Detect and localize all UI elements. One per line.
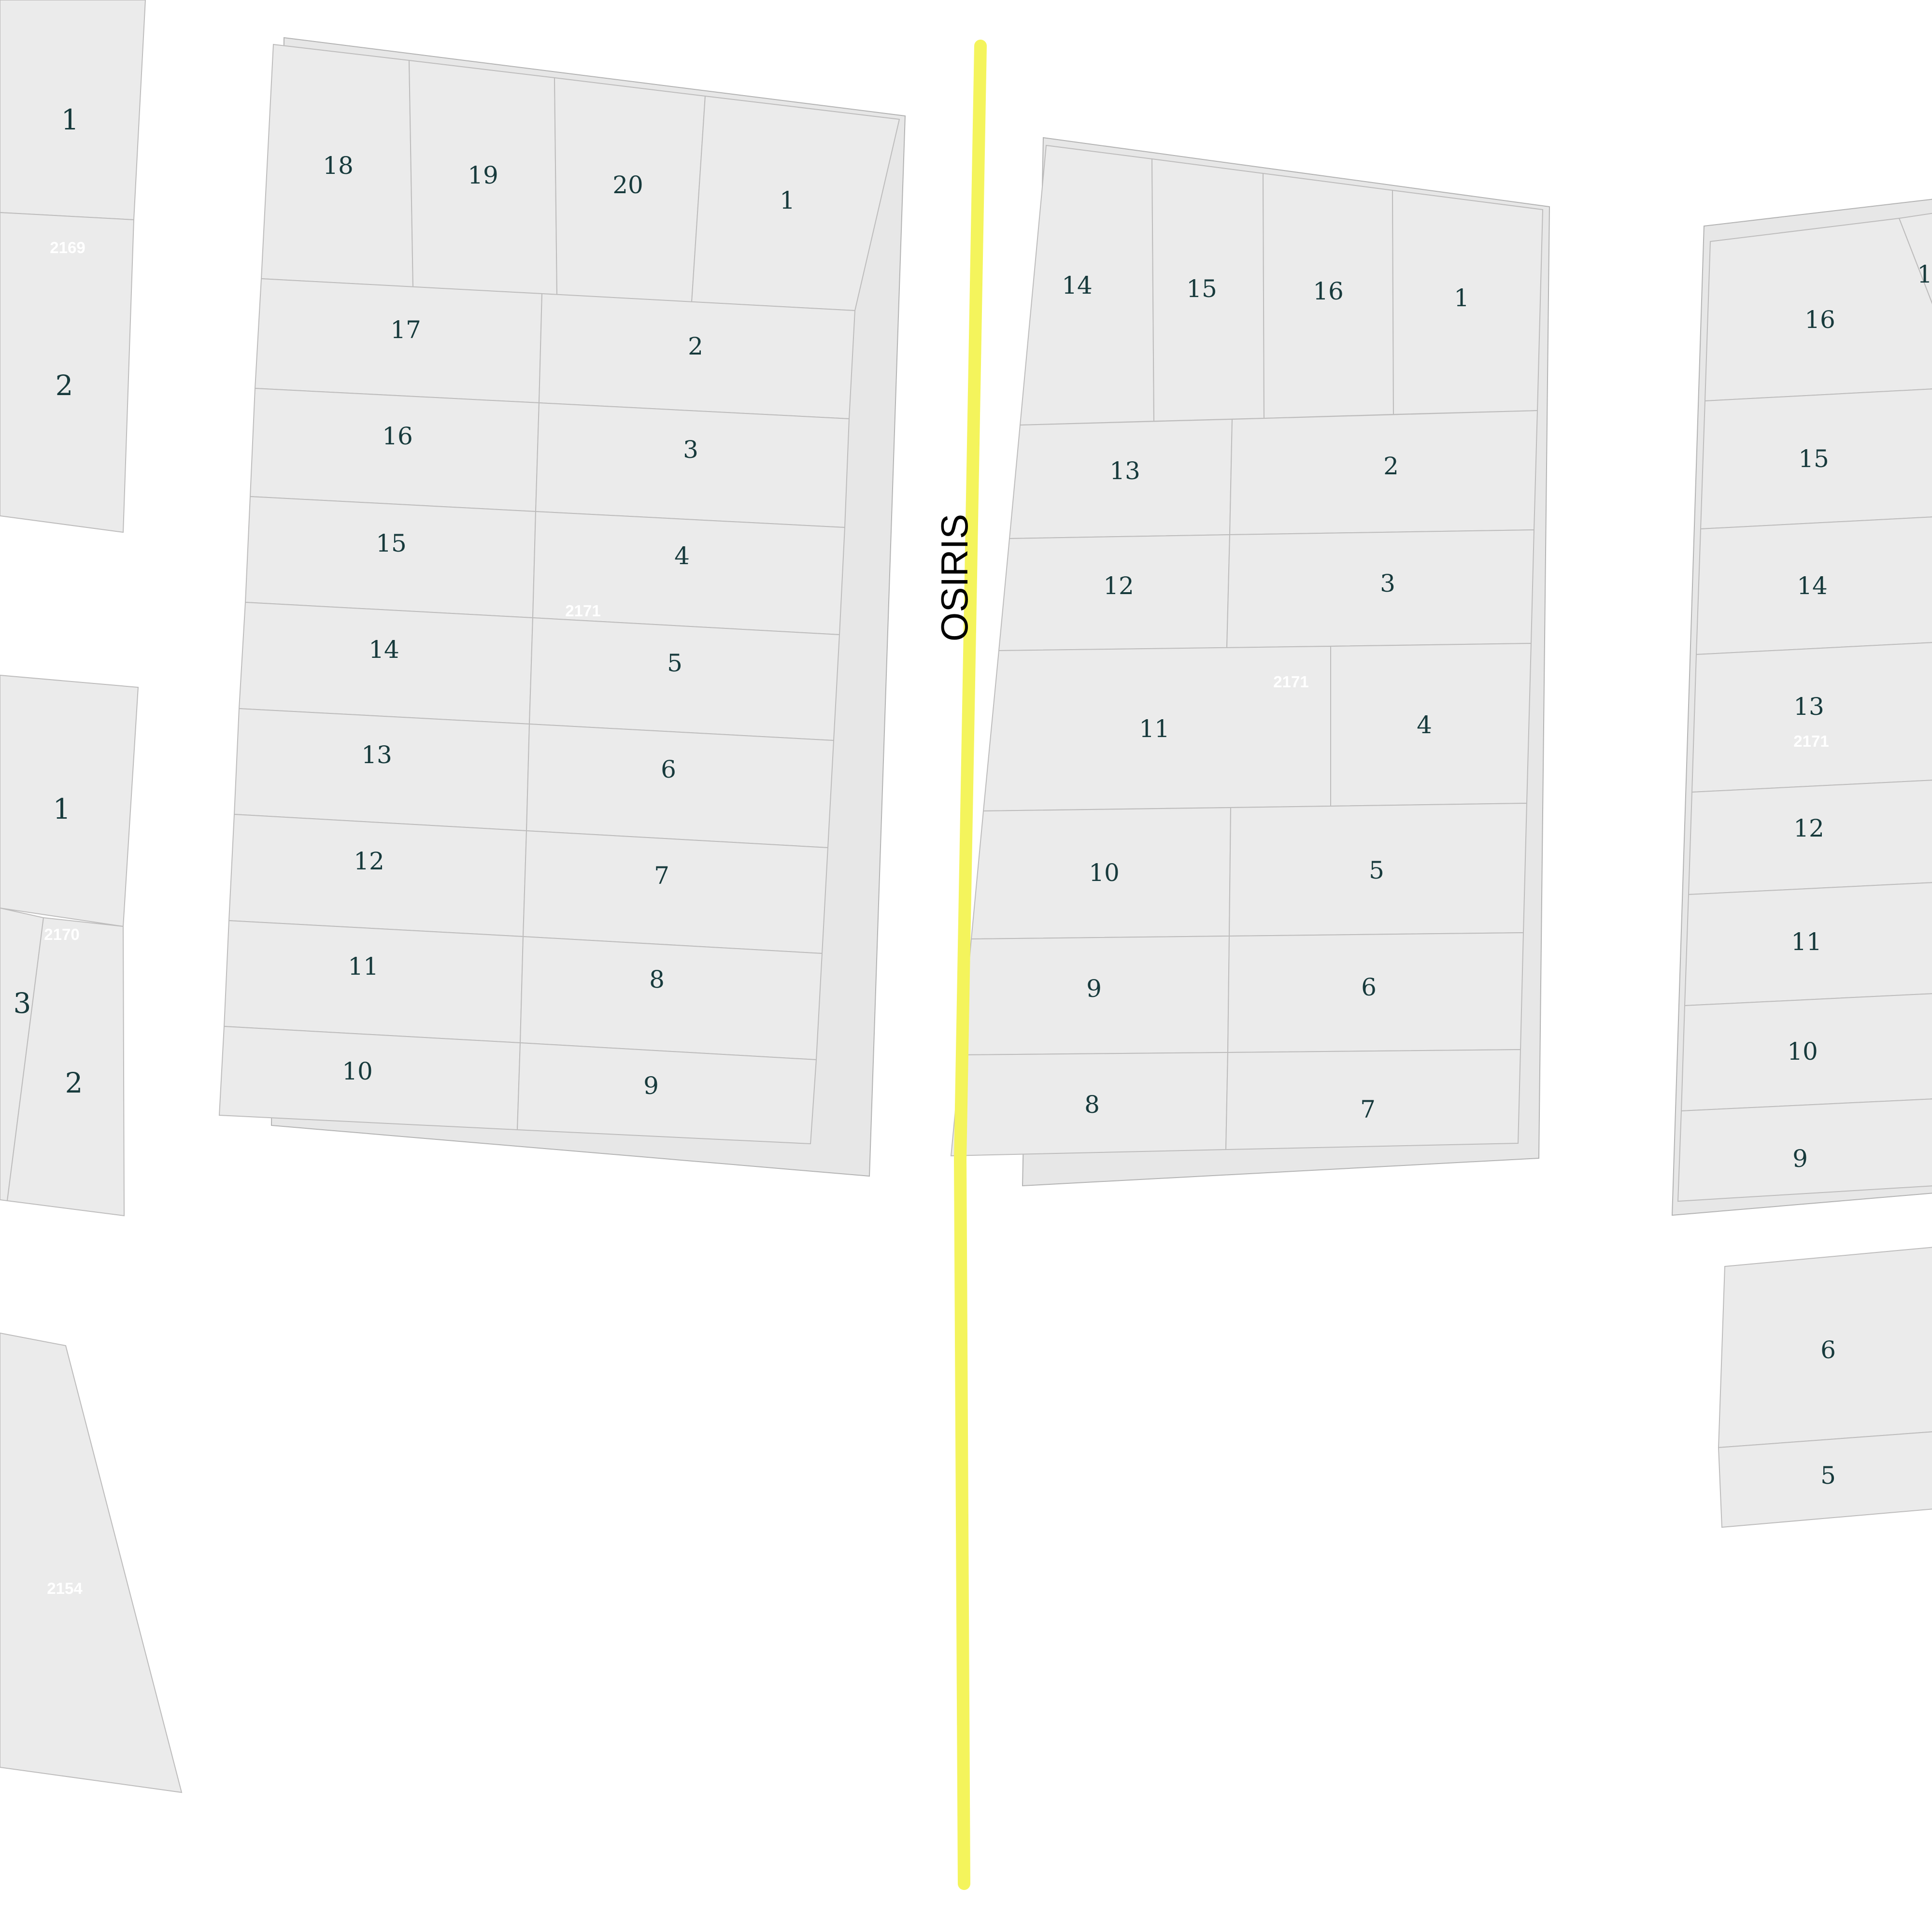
block-2171-far-east-label: 2171 [1793,732,1829,750]
block-2171-west-parcel-number-11: 11 [348,952,379,980]
block-2171-west-parcel-number-14: 14 [369,636,399,664]
block-2171-west-parcel-number-7: 7 [654,862,669,890]
block-2171-east-parcel-number-3: 3 [1380,569,1395,597]
block-2171-west-parcel-number-18: 18 [323,152,354,180]
block-2170-parcel-number-3: 3 [14,987,31,1020]
block-2171-east-parcel-number-5: 5 [1369,856,1384,884]
block-2171-west-parcel-3[interactable] [536,403,849,527]
block-2171-east-parcel-number-12: 12 [1103,572,1134,600]
block-2171-west-parcel-number-19: 19 [468,161,498,189]
block-2171-far-east-parcel-number-15: 15 [1798,445,1829,473]
block-2171-east-parcel-number-6: 6 [1361,973,1377,1001]
block-2171-west-parcel-number-17: 17 [390,316,421,344]
block-2171-far-east-parcel-number-13: 13 [1793,693,1824,721]
block-2171-west-parcel-number-16: 16 [382,422,413,450]
block-2171-west-parcel-5[interactable] [529,618,839,740]
block-2169-label: 2169 [50,239,85,256]
block-2171-east-parcel-number-2: 2 [1383,452,1399,480]
block-2171-west-parcel-number-12: 12 [354,847,384,875]
map-canvas: 1218192011721631541451361271181091415161… [0,0,1932,1932]
block-2171-east-parcel-number-11: 11 [1139,715,1170,743]
block-2171-west-parcel-number-4: 4 [674,542,690,570]
block-2171-east-parcel-number-7: 7 [1360,1095,1376,1123]
block-2171-west-parcel-number-6: 6 [661,755,676,783]
block-2171-east-parcel-number-10: 10 [1089,859,1120,887]
block-2171-west-parcel-number-10: 10 [342,1057,373,1085]
block-2171-far-east-parcel-number-12: 12 [1793,814,1824,842]
block-2170-parcel-number-2: 2 [65,1066,83,1099]
block-2171-east-parcel-number-1: 1 [1454,284,1469,312]
block-2171-east-parcel-number-15: 15 [1186,275,1217,303]
block-2171-west-parcel-number-20: 20 [612,171,643,199]
block-2154-parcel-unlabeled[interactable] [0,1333,182,1792]
block-2171-west-parcel-number-9: 9 [643,1072,659,1100]
block-2170-label: 2170 [44,925,79,943]
block-2171-west-parcel-9[interactable] [517,1043,816,1144]
block-southeast-parcel-number-5: 5 [1820,1462,1836,1490]
block-2171-west-parcel-8[interactable] [520,937,822,1060]
block-2171-far-east-parcel-number-1: 1 [1917,260,1932,288]
block-2169-parcel-number-2: 2 [56,369,73,402]
block-2171-far-east-parcel-number-11: 11 [1791,928,1822,956]
block-southeast-parcel-number-6: 6 [1820,1336,1836,1364]
block-2170-parcel-number-1: 1 [53,793,71,825]
block-2171-west-parcel-number-13: 13 [361,741,392,769]
block-2171-west-parcel-6[interactable] [526,724,834,848]
block-2169-parcel-number-1: 1 [61,103,79,136]
block-2171-west-parcel-number-8: 8 [649,966,665,994]
block-2171-east-parcel-number-8: 8 [1084,1091,1100,1119]
block-2171-west-parcel-number-5: 5 [667,649,682,677]
block-2171-west-label: 2171 [565,602,600,620]
block-2171-west-parcel-11[interactable] [224,921,523,1043]
block-2171-far-east-parcel-number-10: 10 [1787,1037,1818,1065]
block-2171-west-parcel-number-15: 15 [376,529,407,557]
block-2171-east-label: 2171 [1273,673,1308,691]
block-2171-west-parcel-number-3: 3 [683,436,698,464]
block-2171-east-parcel-number-14: 14 [1062,271,1093,299]
block-2171-west-parcel-number-1: 1 [780,186,795,214]
block-2171-west-parcel-12[interactable] [229,814,526,937]
block-2171-east-parcel-number-16: 16 [1313,277,1344,305]
map-viewport: 1218192011721631541451361271181091415161… [0,0,1932,1932]
block-2171-west-parcel-13[interactable] [234,709,529,831]
block-2154-label: 2154 [47,1579,83,1597]
road-osiris-label: OSIRIS [933,514,976,641]
block-2171-east-parcel-number-9: 9 [1086,975,1102,1003]
block-2171-far-east-parcel-number-9: 9 [1792,1145,1808,1173]
block-2171-far-east-parcel-number-16: 16 [1804,306,1835,334]
block-2171-east-parcel-number-13: 13 [1109,457,1140,485]
block-2171-far-east-parcel-number-14: 14 [1797,572,1828,600]
block-2171-west-parcel-number-2: 2 [688,332,703,360]
block-2171-west-parcel-7[interactable] [523,831,828,953]
block-2171-east-parcel-number-4: 4 [1417,711,1432,739]
